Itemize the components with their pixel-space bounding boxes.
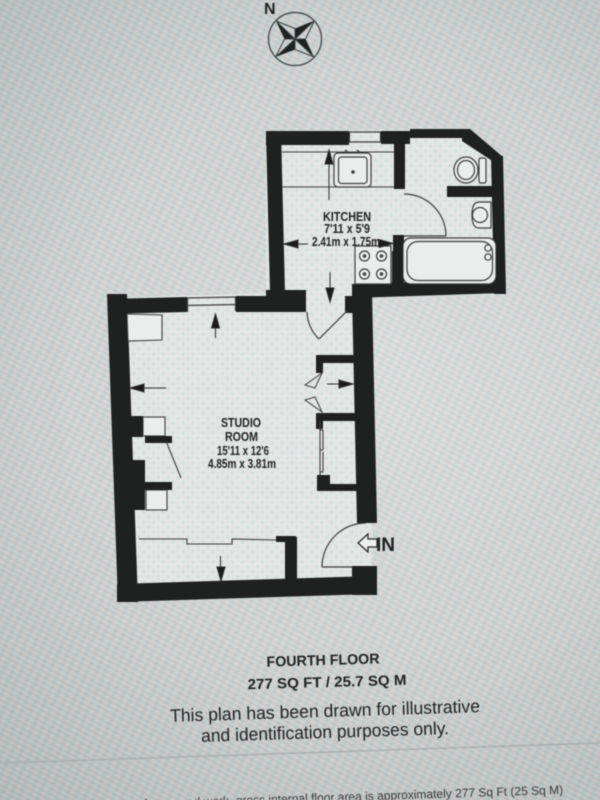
svg-text:4.85m x 3.81m: 4.85m x 3.81m (208, 457, 276, 471)
svg-text:N: N (264, 1, 276, 18)
svg-text:STUDIO: STUDIO (221, 415, 261, 430)
svg-text:15'11 x 12'6: 15'11 x 12'6 (217, 444, 269, 458)
svg-text:IN: IN (376, 535, 395, 556)
svg-text:of approved work, gross intern: of approved work, gross internal floor a… (137, 783, 563, 800)
svg-text:277 SQ FT / 25.7 SQ M: 277 SQ FT / 25.7 SQ M (247, 673, 406, 693)
svg-text:FOURTH FLOOR: FOURTH FLOOR (266, 651, 380, 670)
svg-text:7'11 x 5'9: 7'11 x 5'9 (324, 222, 370, 236)
svg-text:ROOM: ROOM (225, 429, 258, 444)
svg-text:2.41m x 1.75m: 2.41m x 1.75m (312, 235, 380, 249)
